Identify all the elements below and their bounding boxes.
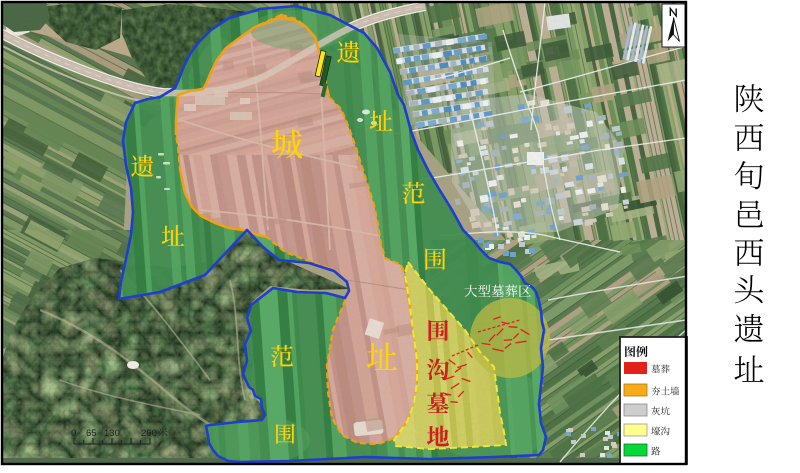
svg-text:260: 260 <box>141 428 157 439</box>
svg-text:0: 0 <box>71 428 76 439</box>
svg-text:130: 130 <box>104 428 120 439</box>
svg-text:65: 65 <box>86 428 97 439</box>
